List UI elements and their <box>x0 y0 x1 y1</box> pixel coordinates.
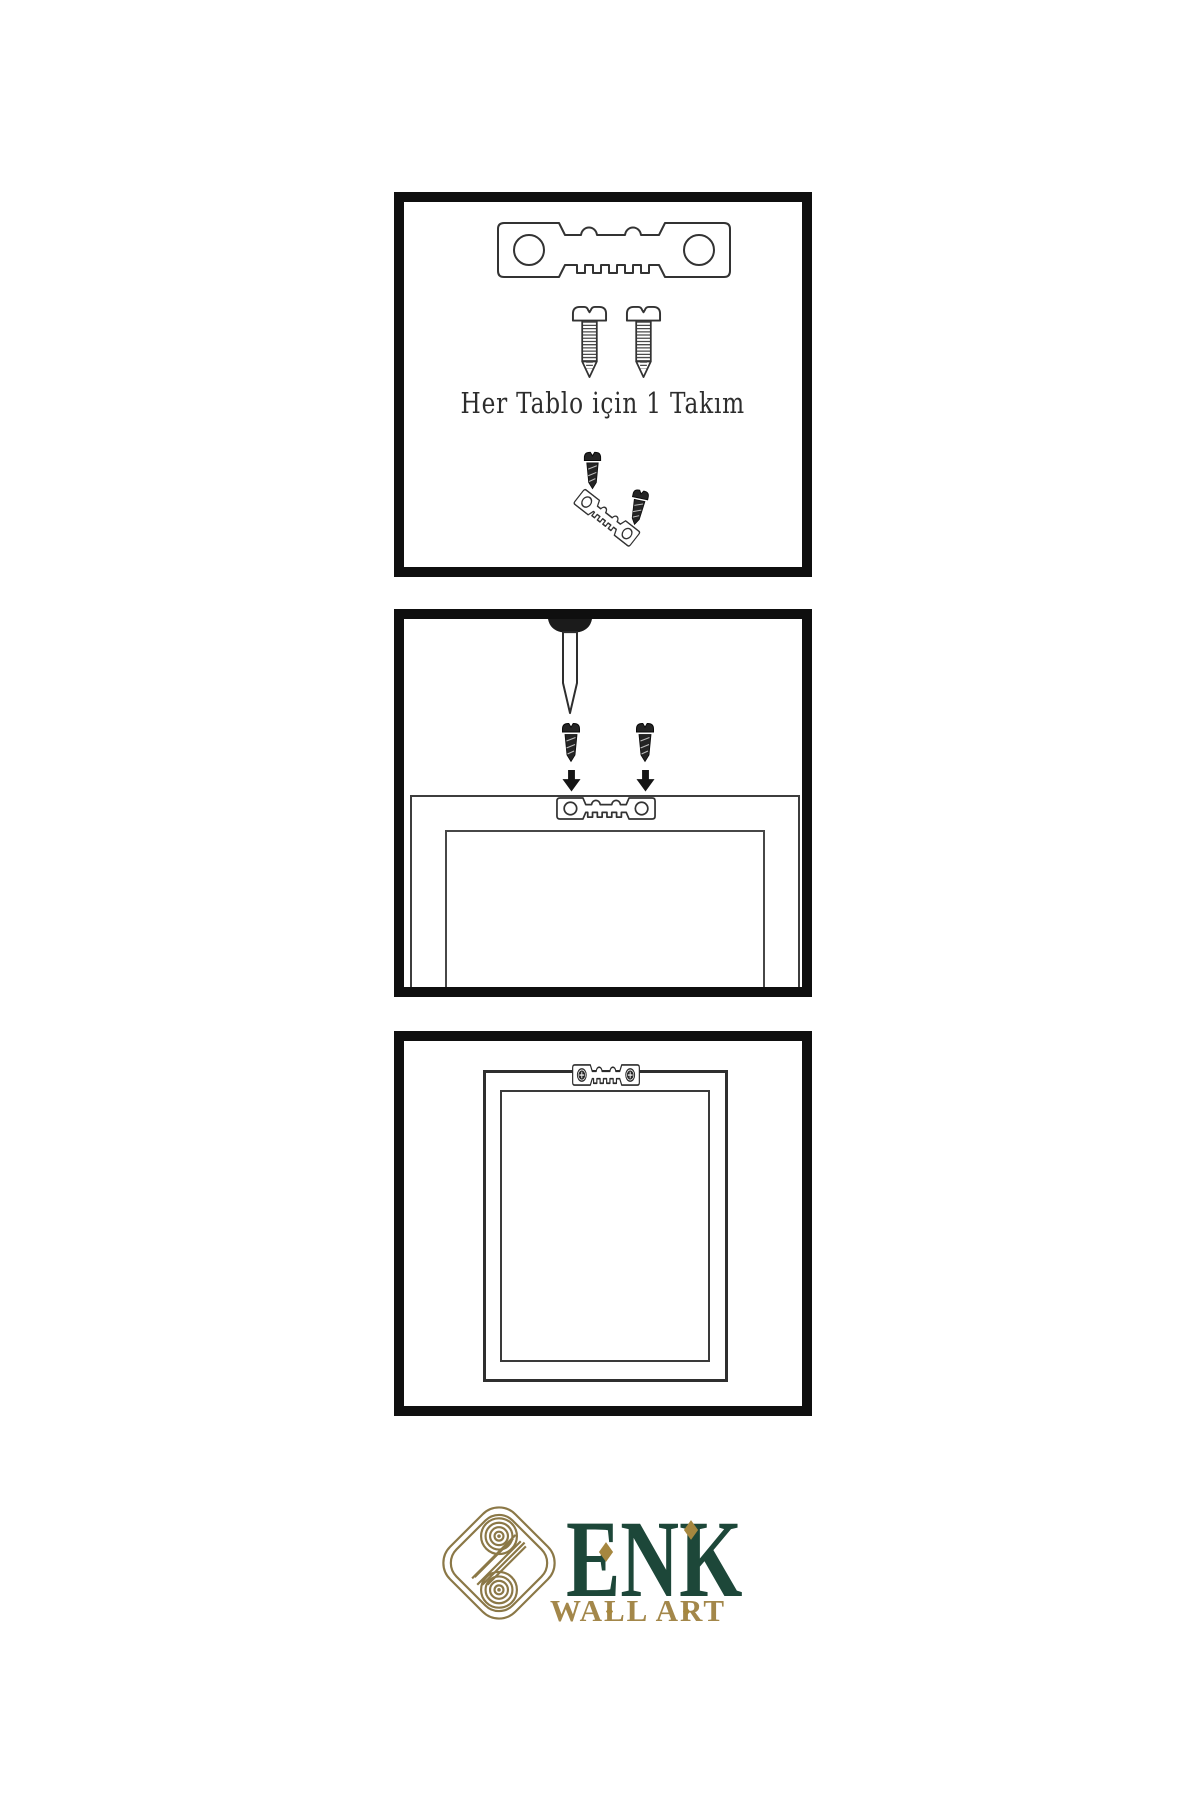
instruction-sheet: Her Tablo için 1 Takım ENK WALL ART <box>0 0 1200 1800</box>
nail-icon <box>546 619 594 716</box>
sawtooth-hanger-icon <box>497 222 731 278</box>
frame-back-inner-edge <box>445 830 765 987</box>
mounted-sawtooth-hanger-icon <box>572 1064 640 1086</box>
brand-subtitle: WALL ART <box>550 1593 726 1629</box>
screw-icon <box>625 304 662 381</box>
arrow-down-icon <box>636 770 655 792</box>
mini-screw-icon <box>582 450 603 492</box>
sawtooth-hanger-icon <box>556 797 656 820</box>
kit-caption: Her Tablo için 1 Takım <box>394 386 812 420</box>
interlaced-knot-icon <box>435 1494 563 1632</box>
screw-icon <box>571 304 608 381</box>
dark-screw-icon <box>560 721 582 765</box>
arrow-down-icon <box>562 770 581 792</box>
dark-screw-icon <box>634 721 656 765</box>
kit-caption-text: Her Tablo için 1 Takım <box>461 386 745 420</box>
frame-back-inner-edge <box>500 1090 710 1362</box>
